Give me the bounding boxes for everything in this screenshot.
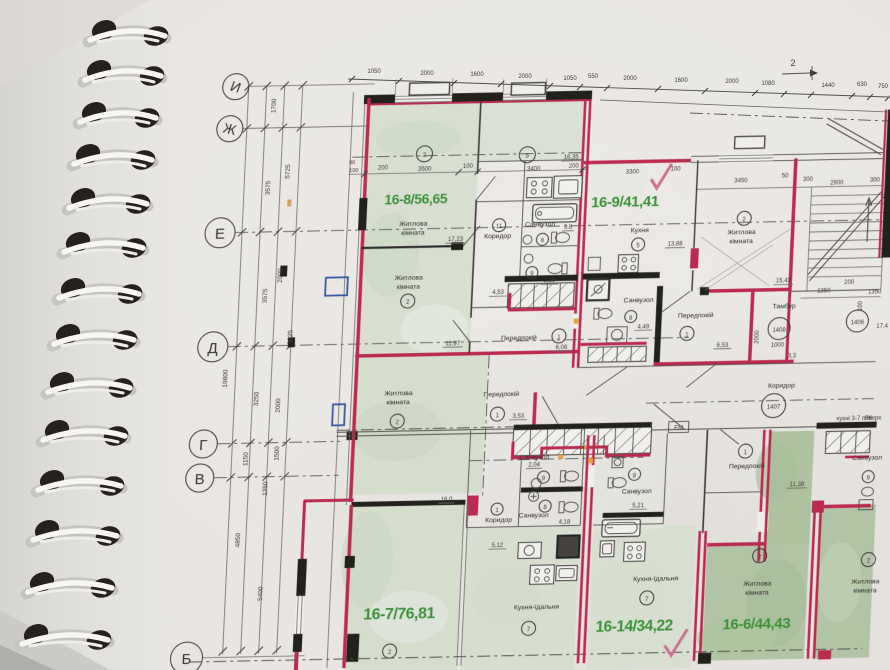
svg-text:4,18: 4,18 <box>558 520 571 526</box>
svg-text:2000: 2000 <box>275 398 283 413</box>
svg-text:1080: 1080 <box>761 81 775 87</box>
svg-text:16,35: 16,35 <box>564 155 580 161</box>
svg-text:3300: 3300 <box>626 169 640 175</box>
svg-text:90: 90 <box>349 160 355 166</box>
svg-text:Житлова: Житлова <box>399 221 428 229</box>
svg-text:1350: 1350 <box>817 289 831 295</box>
svg-text:Санвузол: Санвузол <box>519 454 549 462</box>
svg-text:1406: 1406 <box>850 320 864 326</box>
svg-text:Тамбур: Тамбур <box>772 302 796 310</box>
svg-text:200: 200 <box>569 164 580 170</box>
svg-text:3400: 3400 <box>527 166 541 172</box>
svg-text:Кухня: Кухня <box>630 227 649 234</box>
svg-text:2000: 2000 <box>420 71 434 77</box>
svg-text:Санвузол: Санвузол <box>622 488 652 496</box>
svg-text:11,97: 11,97 <box>445 341 460 347</box>
svg-text:Санвузол: Санвузол <box>623 297 653 305</box>
svg-text:кімната: кімната <box>396 283 420 291</box>
svg-text:3450: 3450 <box>734 178 748 184</box>
svg-text:Житлова: Житлова <box>743 580 772 588</box>
svg-text:100: 100 <box>463 164 474 170</box>
svg-text:3250: 3250 <box>253 391 261 406</box>
svg-text:16-8/56,65: 16-8/56,65 <box>384 190 448 207</box>
svg-text:5,21: 5,21 <box>632 503 645 509</box>
svg-text:16,0: 16,0 <box>441 497 454 503</box>
svg-text:Коридор: Коридор <box>484 233 511 241</box>
svg-text:2: 2 <box>790 58 795 68</box>
svg-text:Санвузол: Санвузол <box>525 221 555 229</box>
svg-text:кімната: кімната <box>729 237 753 245</box>
svg-text:750: 750 <box>878 84 889 90</box>
svg-text:200: 200 <box>844 280 855 286</box>
svg-text:1000: 1000 <box>771 342 785 348</box>
svg-text:1600: 1600 <box>674 78 688 84</box>
svg-text:100: 100 <box>349 168 358 174</box>
svg-text:3575: 3575 <box>262 288 270 303</box>
svg-text:1407: 1407 <box>767 404 781 410</box>
svg-text:1700: 1700 <box>270 98 278 113</box>
svg-text:кухні 3-7 поверх: кухні 3-7 поверх <box>836 415 881 422</box>
svg-text:кімната: кімната <box>386 398 410 406</box>
svg-text:кімната: кімната <box>401 229 425 237</box>
svg-text:3025: 3025 <box>287 330 295 345</box>
svg-text:Кухня-їдальня: Кухня-їдальня <box>633 575 679 583</box>
svg-text:300: 300 <box>870 178 881 184</box>
svg-text:5,12: 5,12 <box>491 543 504 549</box>
svg-text:6,06: 6,06 <box>555 345 568 351</box>
svg-text:Г: Г <box>199 437 208 454</box>
svg-text:ВК: ВК <box>865 416 873 422</box>
svg-text:2900: 2900 <box>830 180 844 186</box>
svg-text:4,53: 4,53 <box>492 290 505 296</box>
svg-text:16-7/76,81: 16-7/76,81 <box>363 605 436 623</box>
svg-text:1500: 1500 <box>273 446 281 461</box>
svg-text:3,3: 3,3 <box>788 353 797 359</box>
svg-text:11,38: 11,38 <box>789 482 804 488</box>
svg-text:Передпокій: Передпокій <box>678 311 714 320</box>
svg-text:2,15: 2,15 <box>544 278 557 284</box>
svg-text:1050: 1050 <box>563 76 577 82</box>
svg-text:15,43: 15,43 <box>776 278 792 284</box>
svg-text:Коридор: Коридор <box>768 382 795 390</box>
svg-text:13,88: 13,88 <box>667 242 683 248</box>
svg-text:Передпокій: Передпокій <box>483 390 519 399</box>
svg-text:Д: Д <box>207 340 218 357</box>
svg-text:11: 11 <box>496 224 503 230</box>
svg-text:16-14/34,22: 16-14/34,22 <box>595 617 673 636</box>
svg-text:В: В <box>194 471 205 488</box>
svg-text:1408: 1408 <box>772 327 786 333</box>
svg-text:16-6/44,43: 16-6/44,43 <box>722 615 791 633</box>
svg-text:50: 50 <box>782 174 790 180</box>
svg-text:3575: 3575 <box>265 180 273 195</box>
svg-text:2000: 2000 <box>623 76 637 82</box>
svg-text:5725: 5725 <box>284 164 292 179</box>
svg-text:кімната: кімната <box>745 589 769 597</box>
svg-text:100: 100 <box>858 300 864 311</box>
svg-text:2000: 2000 <box>725 79 739 85</box>
svg-text:Е: Е <box>215 226 226 243</box>
svg-text:17,4: 17,4 <box>876 323 889 329</box>
svg-text:кімната: кімната <box>853 586 877 594</box>
svg-text:Житлова: Житлова <box>727 229 756 237</box>
svg-text:Житлова: Житлова <box>384 390 413 398</box>
svg-text:200: 200 <box>378 166 389 172</box>
svg-text:19800: 19800 <box>222 369 230 388</box>
svg-text:ЕМ: ЕМ <box>674 425 683 431</box>
svg-text:Санвузол: Санвузол <box>519 512 549 520</box>
svg-text:1440: 1440 <box>821 83 835 89</box>
svg-text:3,53: 3,53 <box>512 414 525 420</box>
svg-text:Коридор: Коридор <box>485 517 512 525</box>
svg-text:Передпокій: Передпокій <box>729 462 765 471</box>
svg-text:100: 100 <box>670 167 681 173</box>
svg-text:2,04: 2,04 <box>528 462 541 468</box>
svg-text:17,23: 17,23 <box>448 237 464 243</box>
svg-text:5400: 5400 <box>257 586 265 601</box>
svg-text:6,53: 6,53 <box>716 343 729 349</box>
svg-text:Житлова: Житлова <box>851 578 880 586</box>
svg-text:Б: Б <box>181 651 192 668</box>
svg-text:4850: 4850 <box>235 533 243 548</box>
svg-text:4,49: 4,49 <box>637 324 650 330</box>
svg-text:16-9/41,41: 16-9/41,41 <box>591 193 660 211</box>
svg-text:Житлова: Житлова <box>394 275 423 283</box>
svg-text:1050: 1050 <box>367 69 381 75</box>
svg-text:1600: 1600 <box>470 72 484 78</box>
svg-text:3500: 3500 <box>418 167 432 173</box>
svg-text:1150: 1150 <box>242 452 250 466</box>
svg-text:Кухня-їдальня: Кухня-їдальня <box>514 604 560 612</box>
svg-text:Передпокій: Передпокій <box>501 333 537 342</box>
svg-text:630: 630 <box>857 82 868 88</box>
svg-text:2000: 2000 <box>754 330 761 344</box>
svg-text:2000: 2000 <box>277 268 285 283</box>
svg-text:1350: 1350 <box>262 481 270 496</box>
svg-text:3,8: 3,8 <box>564 225 573 231</box>
svg-text:1350: 1350 <box>868 290 882 296</box>
svg-text:550: 550 <box>588 74 599 80</box>
svg-text:300: 300 <box>803 177 814 183</box>
svg-text:2000: 2000 <box>518 74 532 80</box>
svg-text:Санвузол: Санвузол <box>852 454 882 462</box>
